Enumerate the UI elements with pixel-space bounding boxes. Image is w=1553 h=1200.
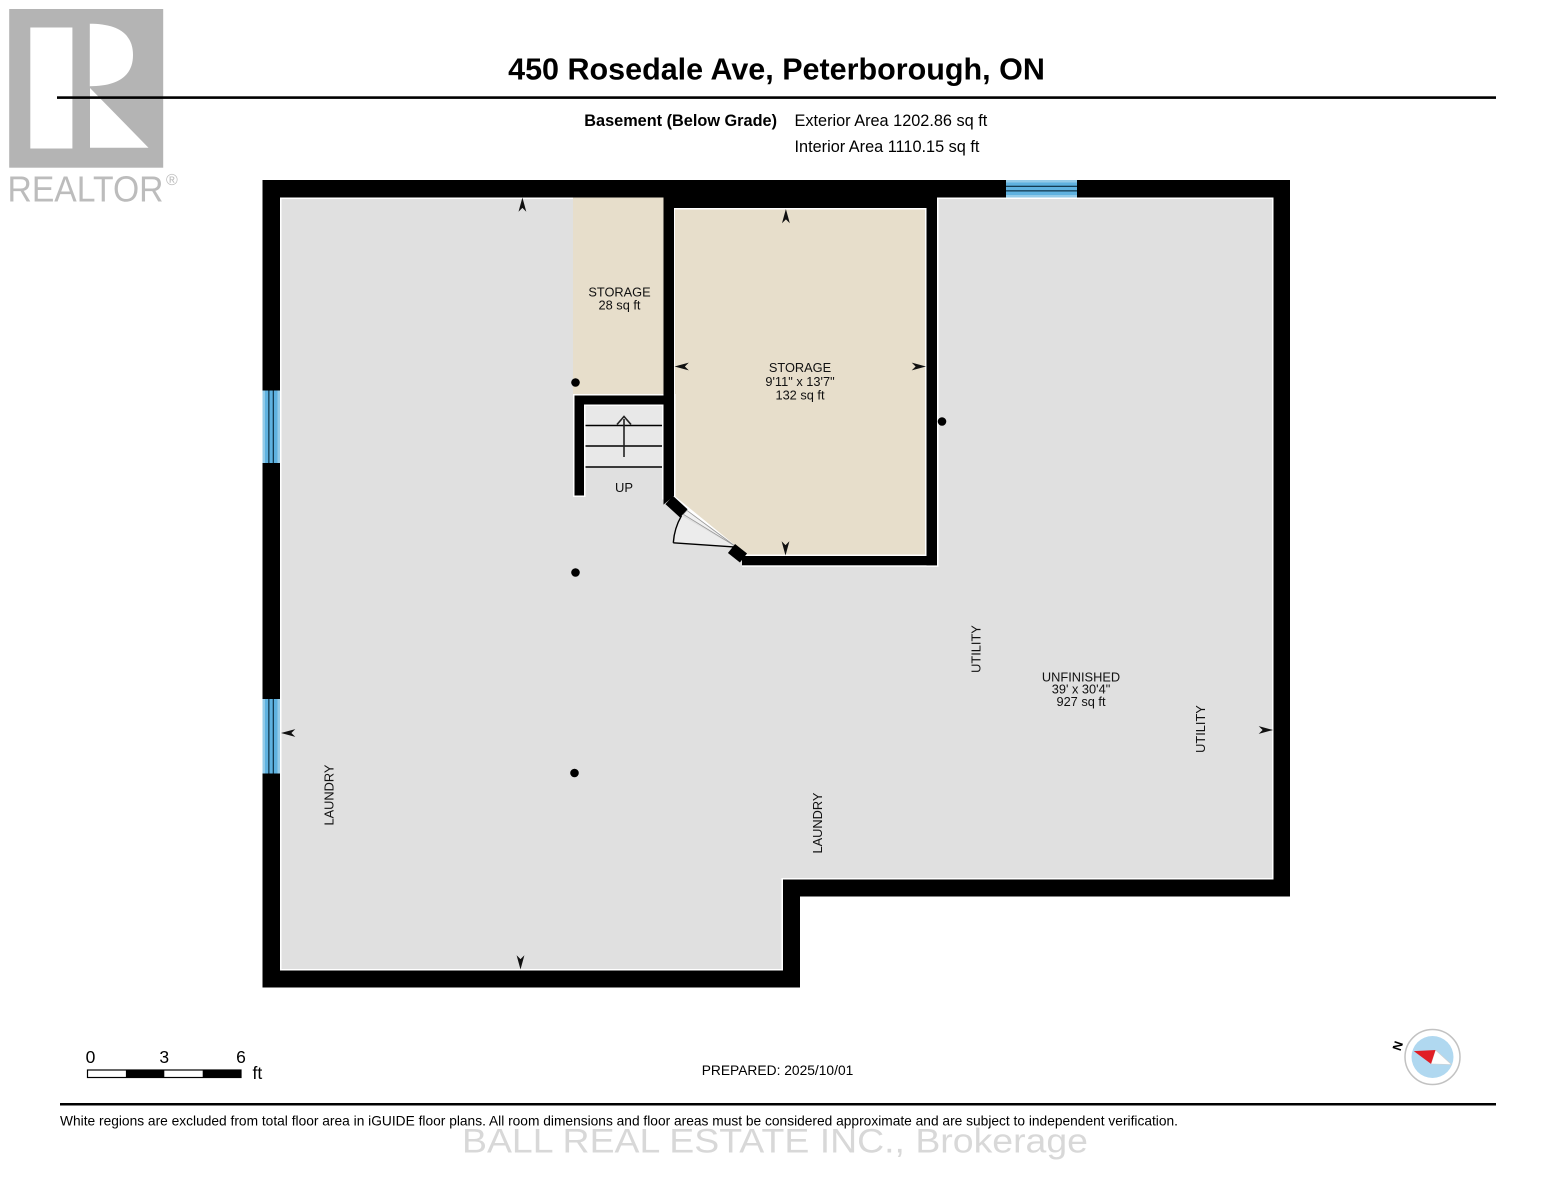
svg-text:LAUNDRY: LAUNDRY [810, 792, 825, 853]
svg-text:927 sq ft: 927 sq ft [1056, 694, 1106, 709]
svg-text:ft: ft [253, 1063, 263, 1083]
svg-text:132 sq ft: 132 sq ft [775, 388, 825, 403]
svg-text:Interior Area 1110.15 sq ft: Interior Area 1110.15 sq ft [795, 138, 980, 156]
svg-text:PREPARED: 2025/10/01: PREPARED: 2025/10/01 [702, 1063, 854, 1078]
svg-text:LAUNDRY: LAUNDRY [322, 764, 337, 825]
svg-text:6: 6 [236, 1047, 246, 1067]
svg-text:UTILITY: UTILITY [968, 625, 983, 673]
svg-text:Basement (Below Grade): Basement (Below Grade) [584, 112, 777, 130]
svg-text:N: N [1390, 1039, 1406, 1052]
svg-text:0: 0 [86, 1047, 96, 1067]
svg-text:3: 3 [159, 1047, 169, 1067]
svg-text:450 Rosedale Ave, Peterborough: 450 Rosedale Ave, Peterborough, ON [508, 53, 1045, 87]
svg-text:UP: UP [615, 480, 633, 495]
svg-text:UTILITY: UTILITY [1193, 705, 1208, 753]
svg-text:REALTOR: REALTOR [8, 169, 164, 210]
svg-text:®: ® [166, 172, 178, 189]
svg-text:Exterior Area 1202.86 sq ft: Exterior Area 1202.86 sq ft [795, 112, 988, 130]
svg-text:28 sq ft: 28 sq ft [599, 298, 641, 313]
svg-text:STORAGE: STORAGE [769, 360, 831, 375]
svg-text:BALL REAL ESTATE INC., Brokera: BALL REAL ESTATE INC., Brokerage [462, 1123, 1088, 1161]
